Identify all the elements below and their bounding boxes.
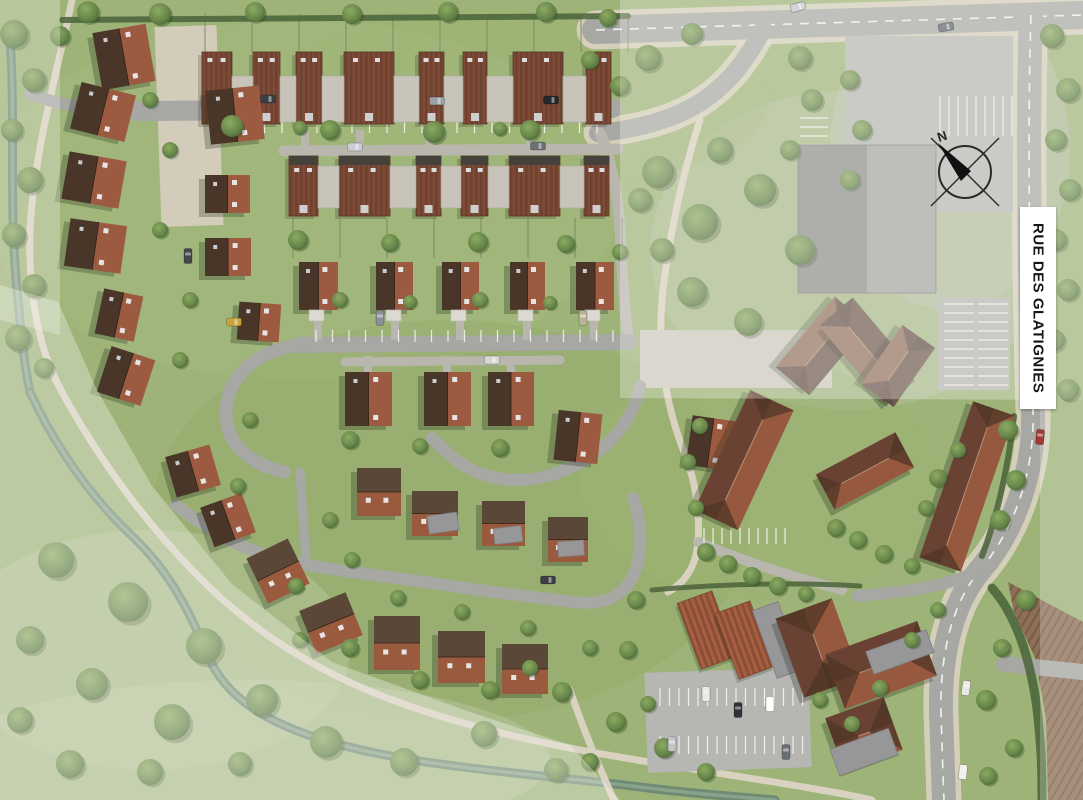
tree <box>242 412 258 428</box>
road <box>298 342 629 345</box>
tree <box>403 295 417 309</box>
building-l <box>488 166 509 208</box>
building-gv <box>57 217 127 277</box>
tree <box>293 121 307 135</box>
building-l <box>444 76 463 122</box>
building-gh <box>351 468 401 520</box>
tree <box>950 442 966 458</box>
building-t2 <box>285 156 318 219</box>
building-gh <box>368 616 420 674</box>
tree <box>491 439 509 457</box>
building-l <box>563 76 586 122</box>
building-l <box>318 166 339 208</box>
tree <box>627 591 645 609</box>
car <box>961 680 971 696</box>
building-t2 <box>457 156 488 219</box>
car <box>531 142 546 150</box>
car <box>348 143 363 151</box>
tree <box>993 639 1011 657</box>
tree <box>976 690 996 710</box>
car <box>766 697 774 712</box>
faded-region <box>0 0 60 335</box>
tree <box>1016 590 1036 610</box>
building-gv <box>570 262 614 314</box>
building-wh <box>386 310 401 321</box>
tree <box>697 543 715 561</box>
tree <box>481 681 499 699</box>
tree <box>288 578 304 594</box>
tree <box>552 682 572 702</box>
car <box>958 764 967 780</box>
building-gh <box>496 644 548 698</box>
car <box>541 576 556 584</box>
site-plan-canvas: N <box>0 0 1083 800</box>
building-t2 <box>505 156 560 219</box>
building-gv <box>199 238 251 280</box>
car <box>734 703 742 718</box>
building-gh <box>432 631 485 687</box>
tree <box>245 2 265 22</box>
tree <box>904 632 920 648</box>
tree <box>918 500 934 516</box>
building-gv <box>504 262 545 314</box>
tree <box>849 531 867 549</box>
tree <box>341 431 359 449</box>
car <box>376 311 384 326</box>
tree <box>390 590 406 606</box>
tree <box>692 418 708 434</box>
tree <box>152 222 168 238</box>
car <box>702 687 710 702</box>
tree <box>468 232 488 252</box>
building-t <box>292 52 322 127</box>
tree <box>688 500 704 516</box>
tree <box>697 763 715 781</box>
road <box>345 360 560 362</box>
tree <box>423 121 445 143</box>
tree <box>798 586 814 602</box>
tree <box>522 660 538 676</box>
building-gv <box>547 409 602 468</box>
tree <box>640 696 656 712</box>
tree <box>493 122 507 136</box>
tree <box>680 454 696 470</box>
car <box>184 249 192 264</box>
building-l <box>280 76 296 122</box>
tree <box>769 577 787 595</box>
building-t2 <box>335 156 390 219</box>
building-wh <box>518 310 533 321</box>
building-gv <box>418 372 471 430</box>
tree <box>619 641 637 659</box>
tree <box>320 120 340 140</box>
tree <box>142 92 158 108</box>
tree <box>872 680 888 696</box>
building-gv <box>86 24 156 95</box>
tree <box>332 292 348 308</box>
road <box>284 149 618 151</box>
tree <box>412 438 428 454</box>
tree <box>472 292 488 308</box>
tree <box>149 3 171 25</box>
building-l <box>322 76 344 122</box>
building-gr <box>427 512 459 534</box>
tree <box>454 604 470 620</box>
building-t2 <box>412 156 441 219</box>
tree <box>990 510 1010 530</box>
car <box>544 96 559 104</box>
tree <box>162 142 178 158</box>
tree <box>599 9 617 27</box>
tree <box>998 420 1018 440</box>
tree <box>904 558 920 574</box>
building-l <box>390 166 416 208</box>
tree <box>411 671 429 689</box>
tree <box>520 120 540 140</box>
car <box>1035 429 1044 445</box>
tree <box>322 512 338 528</box>
building-gv <box>55 150 127 212</box>
tree <box>342 4 362 24</box>
building-gv <box>436 262 479 314</box>
car <box>579 311 587 326</box>
tree <box>582 640 598 656</box>
building-gv <box>339 372 392 430</box>
building-l <box>487 76 513 122</box>
tree <box>827 519 845 537</box>
tree <box>172 352 188 368</box>
car <box>227 318 242 326</box>
faded-region <box>620 0 1083 400</box>
building-gr <box>493 526 523 545</box>
building-gv <box>482 372 534 430</box>
tree <box>1005 739 1023 757</box>
tree <box>381 234 399 252</box>
building-wh <box>451 310 466 321</box>
building-t <box>415 52 444 127</box>
building-l <box>560 166 584 208</box>
tree <box>930 602 946 618</box>
faded-region <box>1040 400 1083 800</box>
tree <box>979 767 997 785</box>
tree <box>812 692 828 708</box>
tree <box>344 552 360 568</box>
tree <box>288 230 308 250</box>
tree <box>557 235 575 253</box>
car <box>430 97 445 105</box>
tree <box>1006 470 1026 490</box>
road <box>300 472 306 560</box>
tree <box>230 478 246 494</box>
building-t <box>340 52 394 127</box>
tree <box>77 1 99 23</box>
car <box>485 356 500 364</box>
building-gv <box>293 262 338 314</box>
tree <box>581 51 599 69</box>
building-t <box>509 52 563 127</box>
tree <box>536 2 556 22</box>
tree <box>875 545 893 563</box>
tree <box>341 639 359 657</box>
tree <box>929 469 947 487</box>
car <box>782 745 790 760</box>
tree <box>438 2 458 22</box>
tree <box>606 712 626 732</box>
tree <box>543 296 557 310</box>
tree <box>221 115 243 137</box>
site-plan: N RUE DES GLATIGNIES <box>0 0 1083 800</box>
building-gv <box>199 175 250 217</box>
building-gr <box>558 540 585 557</box>
tree <box>743 567 761 585</box>
street-name-label: RUE DES GLATIGNIES <box>1020 207 1056 409</box>
tree <box>520 620 536 636</box>
building-wh <box>309 310 324 321</box>
car <box>668 737 676 752</box>
tree <box>182 292 198 308</box>
tree <box>719 555 737 573</box>
building-l <box>441 166 461 208</box>
car <box>261 95 276 103</box>
tree <box>844 716 860 732</box>
building-l <box>394 76 419 122</box>
